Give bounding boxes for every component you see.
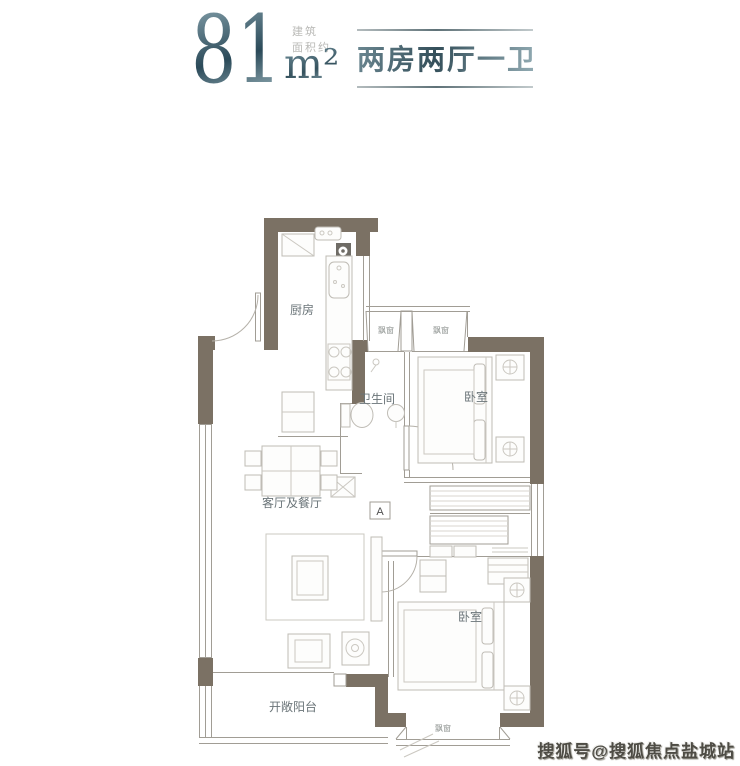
kitchen-sink	[329, 262, 349, 298]
toilet-tank	[341, 404, 350, 427]
bathroom-sink	[388, 405, 405, 422]
bay-window-label: 飘窗	[433, 325, 449, 335]
side-table	[288, 634, 330, 668]
chair	[245, 475, 261, 490]
closet-area	[430, 486, 530, 557]
section-marker-label: A	[376, 506, 384, 518]
bay-window-label: 飘窗	[378, 325, 394, 335]
tv-cabinet	[371, 537, 382, 621]
watermark: 搜狐号@搜狐焦点盐城站	[537, 737, 735, 762]
living-furniture	[245, 446, 382, 668]
floorplan-page: 81 建筑 面积约 m² 两房两厅一卫	[0, 0, 740, 766]
shower-head	[373, 359, 379, 365]
bedroom-bottom-door-arc	[381, 556, 417, 592]
bedroom-top-door-leaf	[404, 426, 409, 470]
bedroom-bottom-door-leaf	[381, 551, 417, 556]
bathroom-label: 卫生间	[359, 392, 395, 406]
bedroom-top-label: 卧室	[464, 389, 488, 404]
bay-window-label: 飘窗	[435, 723, 451, 733]
kitchen-fixtures	[282, 227, 352, 432]
floorplan-drawing: A 厨房 卫生间 卧室 客厅及餐厅 卧室 开敞阳台 飘窗 飘窗 飘窗	[0, 0, 740, 766]
chair	[245, 451, 261, 466]
desk	[420, 560, 446, 576]
bedroom-bottom-label: 卧室	[458, 609, 482, 624]
toilet-bowl	[351, 403, 373, 428]
living-dining-label: 客厅及餐厅	[262, 495, 322, 510]
section-marker: A	[370, 502, 390, 519]
balcony-label: 开敞阳台	[269, 699, 317, 714]
bedroom-top-furniture	[418, 355, 524, 463]
chair	[321, 475, 337, 490]
entry-door-arc	[212, 295, 258, 341]
bedroom-bottom-furniture	[398, 558, 530, 710]
kitchen-label: 厨房	[290, 302, 314, 317]
chair	[321, 451, 337, 466]
